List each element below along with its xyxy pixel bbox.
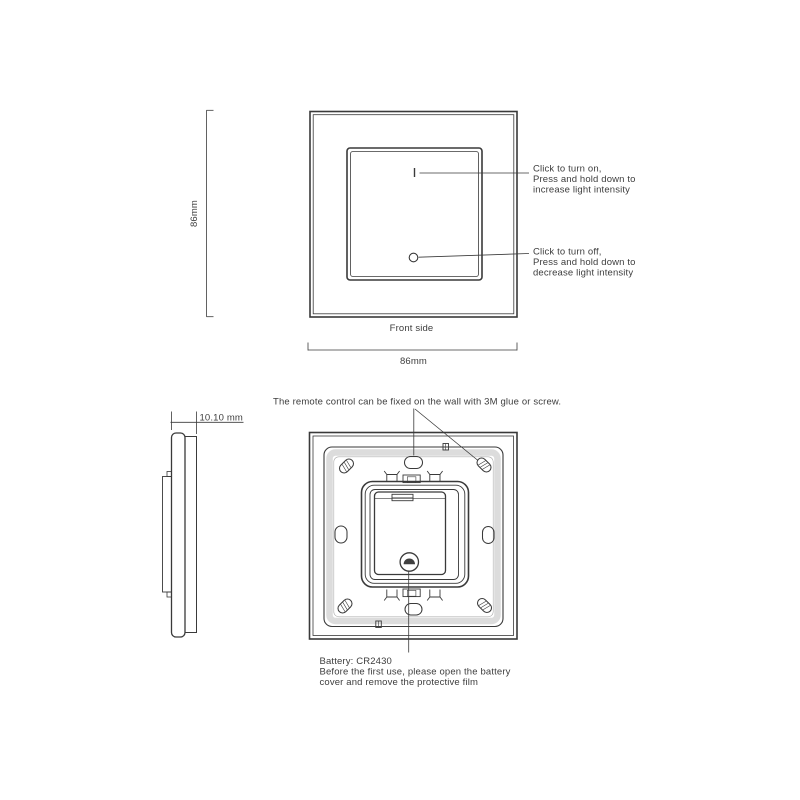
on-annotation-line2: Press and hold down to xyxy=(533,174,636,185)
side-profile xyxy=(163,433,197,637)
mount-note: The remote control can be fixed on the w… xyxy=(273,397,561,408)
battery-annotation-line1: Battery: CR2430 xyxy=(320,656,392,667)
thickness-dimension-label: 10.10 mm xyxy=(200,412,243,423)
height-dimension-label: 86mm xyxy=(189,200,200,227)
thickness-dimension: 10.10 mm xyxy=(171,412,244,435)
front-panel xyxy=(310,112,517,318)
front-view: Click to turn on, Press and hold down to… xyxy=(189,110,636,367)
height-dimension: 86mm xyxy=(189,110,214,316)
on-annotation-line3: increase light intensity xyxy=(533,185,630,196)
off-annotation: Click to turn off, Press and hold down t… xyxy=(533,247,636,279)
width-dimension-label: 86mm xyxy=(400,356,427,367)
battery-annotation-line3: cover and remove the protective film xyxy=(320,677,479,688)
battery-cap xyxy=(400,553,418,571)
side-view: 10.10 mm xyxy=(163,412,244,638)
technical-drawing-page: Click to turn on, Press and hold down to… xyxy=(0,0,800,800)
front-side-label: Front side xyxy=(390,323,434,334)
battery-annotation-line2: Before the first use, please open the ba… xyxy=(320,667,511,678)
on-annotation: Click to turn on, Press and hold down to… xyxy=(533,164,636,196)
off-annotation-line2: Press and hold down to xyxy=(533,257,636,268)
battery-annotation: Battery: CR2430 Before the first use, pl… xyxy=(320,656,511,688)
off-annotation-line3: decrease light intensity xyxy=(533,268,633,279)
on-annotation-line1: Click to turn on, xyxy=(533,164,602,175)
width-dimension: 86mm xyxy=(308,343,517,368)
remote-control-drawing: Click to turn on, Press and hold down to… xyxy=(0,0,800,800)
back-view: The remote control can be fixed on the w… xyxy=(273,397,561,689)
off-annotation-line1: Click to turn off, xyxy=(533,247,602,258)
